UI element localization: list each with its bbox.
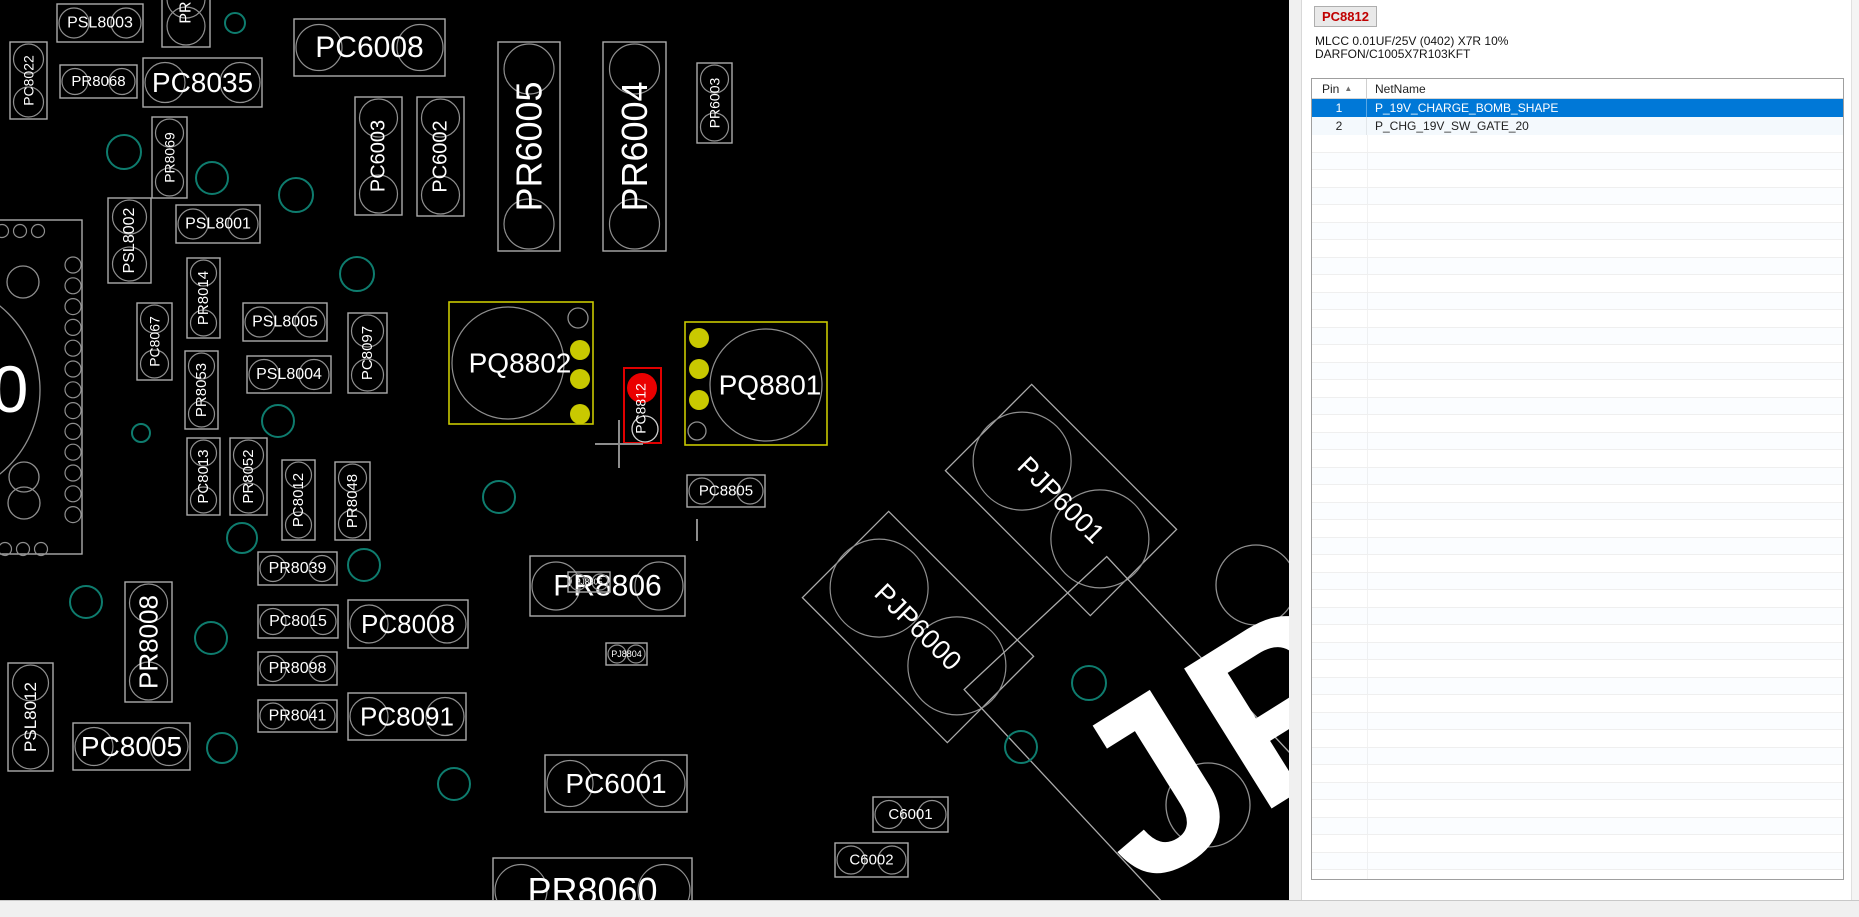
empty-table-row: [1312, 275, 1843, 293]
empty-table-row: [1312, 660, 1843, 678]
empty-table-row: [1312, 853, 1843, 871]
svg-text:PR6005: PR6005: [509, 81, 550, 211]
svg-text:PJ8804: PJ8804: [611, 649, 642, 659]
empty-table-row: [1312, 415, 1843, 433]
empty-table-row: [1312, 730, 1843, 748]
svg-text:PQ8802: PQ8802: [469, 348, 572, 379]
empty-table-row: [1312, 713, 1843, 731]
pin-net-table-header: Pin ▲ NetName: [1312, 79, 1843, 99]
svg-text:PR8053: PR8053: [193, 363, 210, 417]
svg-text:PR8052: PR8052: [240, 449, 257, 503]
svg-text:0: 0: [0, 352, 28, 426]
empty-table-row: [1312, 223, 1843, 241]
svg-text:PC6008: PC6008: [315, 31, 423, 64]
svg-text:PC8013: PC8013: [195, 449, 212, 503]
column-header-netname[interactable]: NetName: [1367, 82, 1843, 96]
svg-text:PC8008: PC8008: [361, 609, 455, 639]
column-header-pin[interactable]: Pin ▲: [1312, 79, 1367, 98]
boardview-app: 0PSL8003PRPC8022PR8068PC8035PC6008PR6005…: [0, 0, 1859, 917]
svg-text:PC6001: PC6001: [565, 768, 666, 799]
empty-table-row: [1312, 573, 1843, 591]
pin-net-table: Pin ▲ NetName 1P_19V_CHARGE_BOMB_SHAPE2P…: [1311, 78, 1844, 880]
svg-text:PC8812: PC8812: [633, 383, 649, 434]
svg-text:PC8805: PC8805: [699, 483, 753, 500]
empty-table-row: [1312, 153, 1843, 171]
svg-text:PC8005: PC8005: [81, 731, 182, 762]
svg-text:PR8008: PR8008: [134, 595, 164, 689]
net-row-pin: 1: [1312, 99, 1367, 117]
empty-table-row: [1312, 695, 1843, 713]
svg-text:PSL8012: PSL8012: [21, 682, 40, 752]
net-row[interactable]: 2P_CHG_19V_SW_GATE_20: [1312, 117, 1843, 135]
empty-table-row: [1312, 345, 1843, 363]
svg-text:PR8060: PR8060: [527, 870, 657, 900]
empty-table-row: [1312, 328, 1843, 346]
svg-text:PC8035: PC8035: [152, 67, 253, 98]
empty-table-row: [1312, 678, 1843, 696]
empty-table-row: [1312, 398, 1843, 416]
svg-text:PJ8805: PJ8805: [575, 578, 603, 587]
empty-table-row: [1312, 363, 1843, 381]
pin-net-table-body: 1P_19V_CHARGE_BOMB_SHAPE2P_CHG_19V_SW_GA…: [1312, 99, 1843, 880]
svg-text:PSL8001: PSL8001: [185, 216, 251, 233]
empty-table-row: [1312, 240, 1843, 258]
svg-text:PC6002: PC6002: [430, 120, 452, 192]
empty-table-row: [1312, 870, 1843, 880]
selected-component-badge: PC8812: [1314, 6, 1377, 27]
empty-table-row: [1312, 643, 1843, 661]
svg-text:PR8039: PR8039: [269, 560, 327, 577]
empty-table-row: [1312, 748, 1843, 766]
svg-text:PC8067: PC8067: [147, 316, 163, 367]
empty-table-row: [1312, 135, 1843, 153]
empty-table-row: [1312, 188, 1843, 206]
component-info-panel: PC8812 MLCC 0.01UF/25V (0402) X7R 10% DA…: [1301, 0, 1859, 900]
svg-text:PSL8002: PSL8002: [121, 207, 138, 273]
empty-table-row: [1312, 170, 1843, 188]
svg-text:PR8041: PR8041: [269, 708, 327, 725]
empty-table-row: [1312, 765, 1843, 783]
svg-text:PSL8003: PSL8003: [67, 15, 133, 32]
empty-table-row: [1312, 555, 1843, 573]
svg-text:PR8048: PR8048: [344, 474, 361, 528]
svg-text:PC8012: PC8012: [290, 473, 307, 527]
svg-text:PR8014: PR8014: [195, 271, 212, 325]
empty-table-row: [1312, 783, 1843, 801]
empty-table-row: [1312, 205, 1843, 223]
sort-ascending-icon: ▲: [1344, 85, 1352, 93]
svg-text:PR6004: PR6004: [614, 81, 655, 211]
empty-table-row: [1312, 590, 1843, 608]
svg-text:PR: PR: [178, 1, 195, 23]
svg-text:PC8015: PC8015: [269, 613, 327, 630]
svg-text:C6002: C6002: [849, 852, 893, 869]
svg-text:PR8068: PR8068: [71, 73, 125, 90]
empty-table-row: [1312, 520, 1843, 538]
empty-table-row: [1312, 450, 1843, 468]
net-row-netname: P_CHG_19V_SW_GATE_20: [1367, 119, 1843, 133]
empty-table-row: [1312, 380, 1843, 398]
empty-table-row: [1312, 485, 1843, 503]
svg-text:PC8091: PC8091: [360, 702, 454, 732]
svg-text:PSL8004: PSL8004: [256, 366, 322, 383]
svg-text:PC8022: PC8022: [21, 55, 37, 106]
svg-text:PR8098: PR8098: [269, 660, 327, 677]
empty-table-row: [1312, 503, 1843, 521]
empty-table-row: [1312, 625, 1843, 643]
empty-table-row: [1312, 293, 1843, 311]
pin-column-label: Pin: [1322, 82, 1339, 96]
empty-table-row: [1312, 538, 1843, 556]
svg-text:PC8097: PC8097: [359, 326, 376, 380]
empty-table-row: [1312, 818, 1843, 836]
empty-table-row: [1312, 800, 1843, 818]
empty-table-row: [1312, 433, 1843, 451]
svg-text:PR6003: PR6003: [707, 77, 723, 128]
bottom-status-strip: [0, 900, 1859, 917]
svg-text:PC6003: PC6003: [368, 120, 390, 192]
net-row-netname: P_19V_CHARGE_BOMB_SHAPE: [1367, 101, 1843, 115]
empty-table-row: [1312, 310, 1843, 328]
silkscreen-text-0: 0: [0, 352, 28, 426]
board-canvas[interactable]: 0PSL8003PRPC8022PR8068PC8035PC6008PR6005…: [0, 0, 1289, 900]
net-row[interactable]: 1P_19V_CHARGE_BOMB_SHAPE: [1312, 99, 1843, 117]
window-edge-gutter: [1851, 0, 1859, 900]
part-description-line2: DARFON/C1005X7R103KFT: [1315, 48, 1470, 61]
svg-text:PR8069: PR8069: [162, 132, 178, 183]
net-row-pin: 2: [1312, 117, 1367, 135]
svg-text:PQ8801: PQ8801: [719, 370, 822, 401]
empty-table-row: [1312, 468, 1843, 486]
svg-text:PSL8005: PSL8005: [252, 314, 318, 331]
svg-text:C6001: C6001: [888, 806, 932, 823]
empty-table-row: [1312, 258, 1843, 276]
empty-table-row: [1312, 608, 1843, 626]
empty-table-row: [1312, 835, 1843, 853]
